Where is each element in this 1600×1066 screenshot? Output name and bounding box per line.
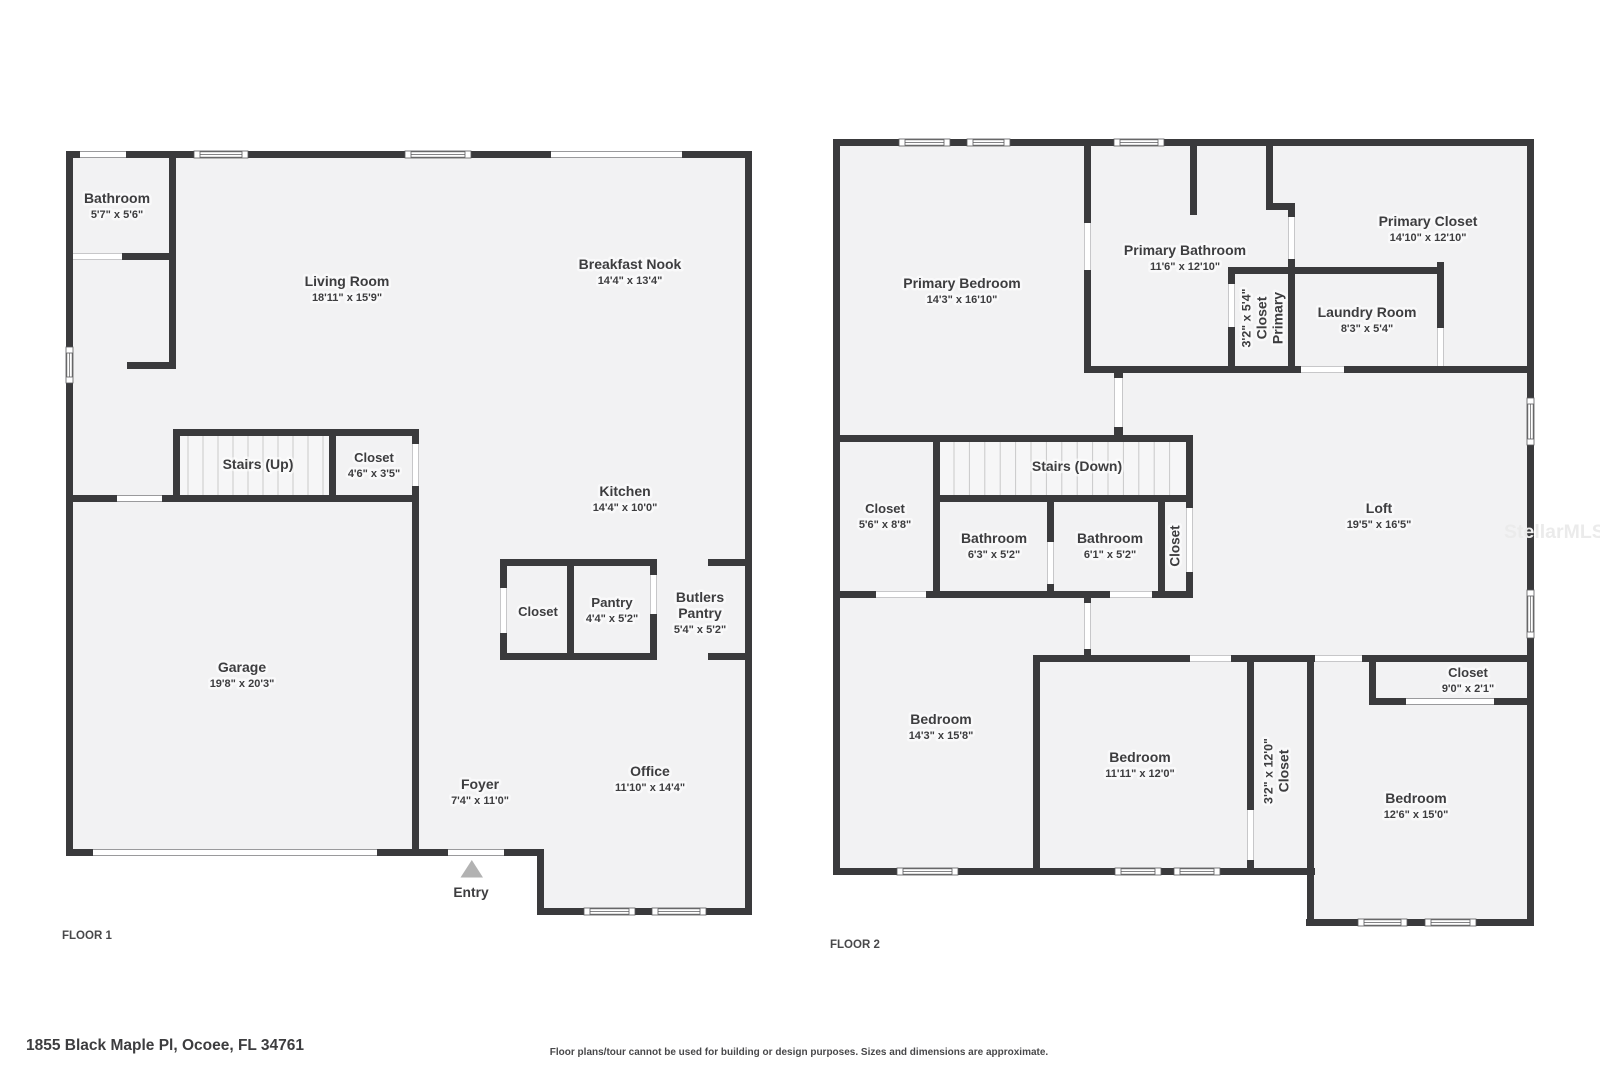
svg-text:Laundry Room: Laundry Room xyxy=(1318,304,1417,320)
svg-text:Living Room: Living Room xyxy=(305,273,390,289)
svg-text:Breakfast Nook: Breakfast Nook xyxy=(579,256,682,272)
svg-text:Closet: Closet xyxy=(518,604,558,619)
svg-text:Bathroom: Bathroom xyxy=(1077,530,1143,546)
svg-text:Butlers: Butlers xyxy=(676,589,724,605)
svg-text:14'10" x 12'10": 14'10" x 12'10" xyxy=(1390,232,1467,244)
svg-text:4'6" x 3'5": 4'6" x 3'5" xyxy=(348,468,400,480)
svg-text:3'2" x 12'0": 3'2" x 12'0" xyxy=(1261,738,1275,804)
svg-text:Entry: Entry xyxy=(453,885,489,900)
svg-text:3'2" x 5'4": 3'2" x 5'4" xyxy=(1239,288,1253,347)
svg-text:14'4" x 10'0": 14'4" x 10'0" xyxy=(593,502,658,514)
svg-text:19'8" x 20'3": 19'8" x 20'3" xyxy=(210,678,275,690)
svg-text:Stairs (Down): Stairs (Down) xyxy=(1032,458,1122,474)
svg-text:Primary Closet: Primary Closet xyxy=(1379,213,1478,229)
svg-text:Bedroom: Bedroom xyxy=(1385,790,1446,806)
svg-text:Foyer: Foyer xyxy=(461,776,500,792)
svg-text:Pantry: Pantry xyxy=(678,605,722,621)
svg-text:Closet: Closet xyxy=(1254,296,1270,339)
svg-text:Primary Bedroom: Primary Bedroom xyxy=(903,275,1020,291)
svg-text:12'6" x 15'0": 12'6" x 15'0" xyxy=(1384,809,1449,821)
svg-text:5'7" x 5'6": 5'7" x 5'6" xyxy=(91,209,143,221)
svg-text:Bathroom: Bathroom xyxy=(84,190,150,206)
svg-text:Closet: Closet xyxy=(865,501,905,516)
svg-text:Closet: Closet xyxy=(1448,665,1488,680)
svg-text:14'4" x 13'4": 14'4" x 13'4" xyxy=(598,275,663,287)
svg-text:7'4" x 11'0": 7'4" x 11'0" xyxy=(451,795,509,807)
svg-text:Closet: Closet xyxy=(354,450,394,465)
svg-text:Loft: Loft xyxy=(1366,500,1393,516)
svg-text:Garage: Garage xyxy=(218,659,266,675)
svg-text:11'10" x 14'4": 11'10" x 14'4" xyxy=(615,782,685,794)
svg-text:Kitchen: Kitchen xyxy=(599,483,650,499)
svg-text:Floor plans/tour cannot be use: Floor plans/tour cannot be used for buil… xyxy=(550,1047,1049,1058)
svg-text:Primary Bathroom: Primary Bathroom xyxy=(1124,242,1246,258)
svg-text:5'4" x 5'2": 5'4" x 5'2" xyxy=(674,624,726,636)
svg-text:4'4" x 5'2": 4'4" x 5'2" xyxy=(586,613,638,625)
svg-text:Bathroom: Bathroom xyxy=(961,530,1027,546)
svg-text:14'3" x 15'8": 14'3" x 15'8" xyxy=(909,730,974,742)
svg-text:8'3" x 5'4": 8'3" x 5'4" xyxy=(1341,323,1393,335)
svg-text:9'0" x 2'1": 9'0" x 2'1" xyxy=(1442,683,1494,695)
svg-text:Bedroom: Bedroom xyxy=(1109,749,1170,765)
svg-text:StellarMLS: StellarMLS xyxy=(1504,521,1600,543)
svg-text:5'6" x 8'8": 5'6" x 8'8" xyxy=(859,519,911,531)
svg-text:18'11" x 15'9": 18'11" x 15'9" xyxy=(312,292,382,304)
svg-text:Closet: Closet xyxy=(1276,749,1292,792)
svg-text:6'1" x 5'2": 6'1" x 5'2" xyxy=(1084,549,1136,561)
svg-text:1855 Black Maple Pl, Ocoee, FL: 1855 Black Maple Pl, Ocoee, FL 34761 xyxy=(26,1037,304,1054)
svg-text:Pantry: Pantry xyxy=(591,595,633,610)
svg-text:Bedroom: Bedroom xyxy=(910,711,971,727)
svg-text:Primary: Primary xyxy=(1270,292,1286,344)
svg-text:FLOOR 2: FLOOR 2 xyxy=(830,939,880,951)
svg-text:11'6" x 12'10": 11'6" x 12'10" xyxy=(1150,261,1220,273)
svg-text:19'5" x 16'5": 19'5" x 16'5" xyxy=(1347,519,1412,531)
svg-text:11'11" x 12'0": 11'11" x 12'0" xyxy=(1105,768,1175,780)
svg-text:FLOOR 1: FLOOR 1 xyxy=(62,930,112,942)
svg-text:Office: Office xyxy=(630,763,670,779)
svg-text:6'3" x 5'2": 6'3" x 5'2" xyxy=(968,549,1020,561)
svg-text:Stairs (Up): Stairs (Up) xyxy=(223,456,294,472)
svg-text:14'3" x 16'10": 14'3" x 16'10" xyxy=(927,294,998,306)
svg-text:Closet: Closet xyxy=(1168,525,1183,567)
